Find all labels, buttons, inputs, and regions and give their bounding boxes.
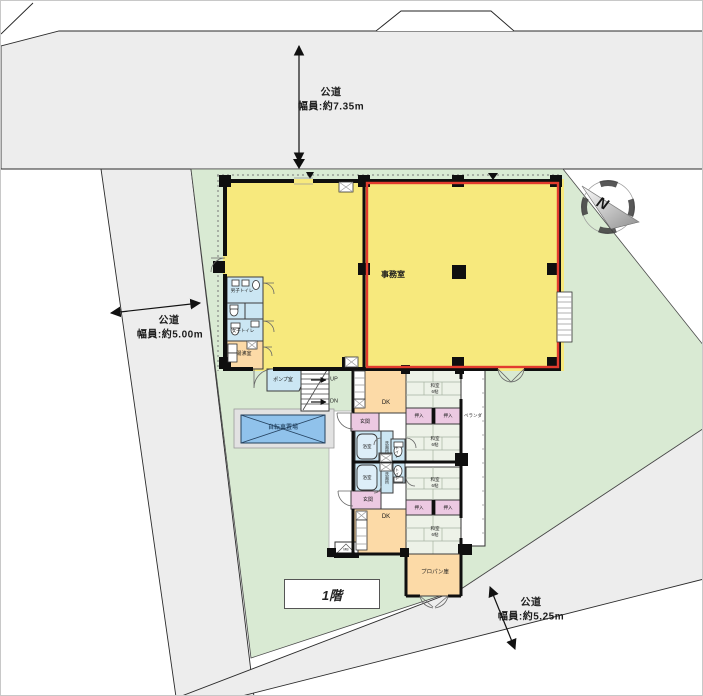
closet-2b xyxy=(435,500,461,515)
stairs xyxy=(301,369,329,411)
closet-1b xyxy=(435,408,461,424)
road-top xyxy=(1,3,703,169)
meter-box xyxy=(334,542,359,558)
closet-1a xyxy=(406,408,432,424)
site-plan: N 公道 幅員:約7.35m 公道 幅員:約5.00m 公道 幅員:約5.25m… xyxy=(0,0,703,696)
washitsu-3 xyxy=(406,467,461,500)
floor-label: 1階 xyxy=(322,585,342,604)
floor-label-box: 1階 xyxy=(284,579,380,609)
washitsu-4 xyxy=(406,515,461,554)
propane-room xyxy=(406,554,461,596)
entrance-a-room xyxy=(351,413,379,431)
entrance-b-room xyxy=(351,491,381,509)
exterior-ladder xyxy=(557,292,572,342)
washitsu-2 xyxy=(406,424,461,463)
office-block xyxy=(223,179,564,371)
closet-2a xyxy=(406,500,432,515)
bicycle-parking xyxy=(234,409,334,448)
washitsu-1 xyxy=(406,369,461,408)
